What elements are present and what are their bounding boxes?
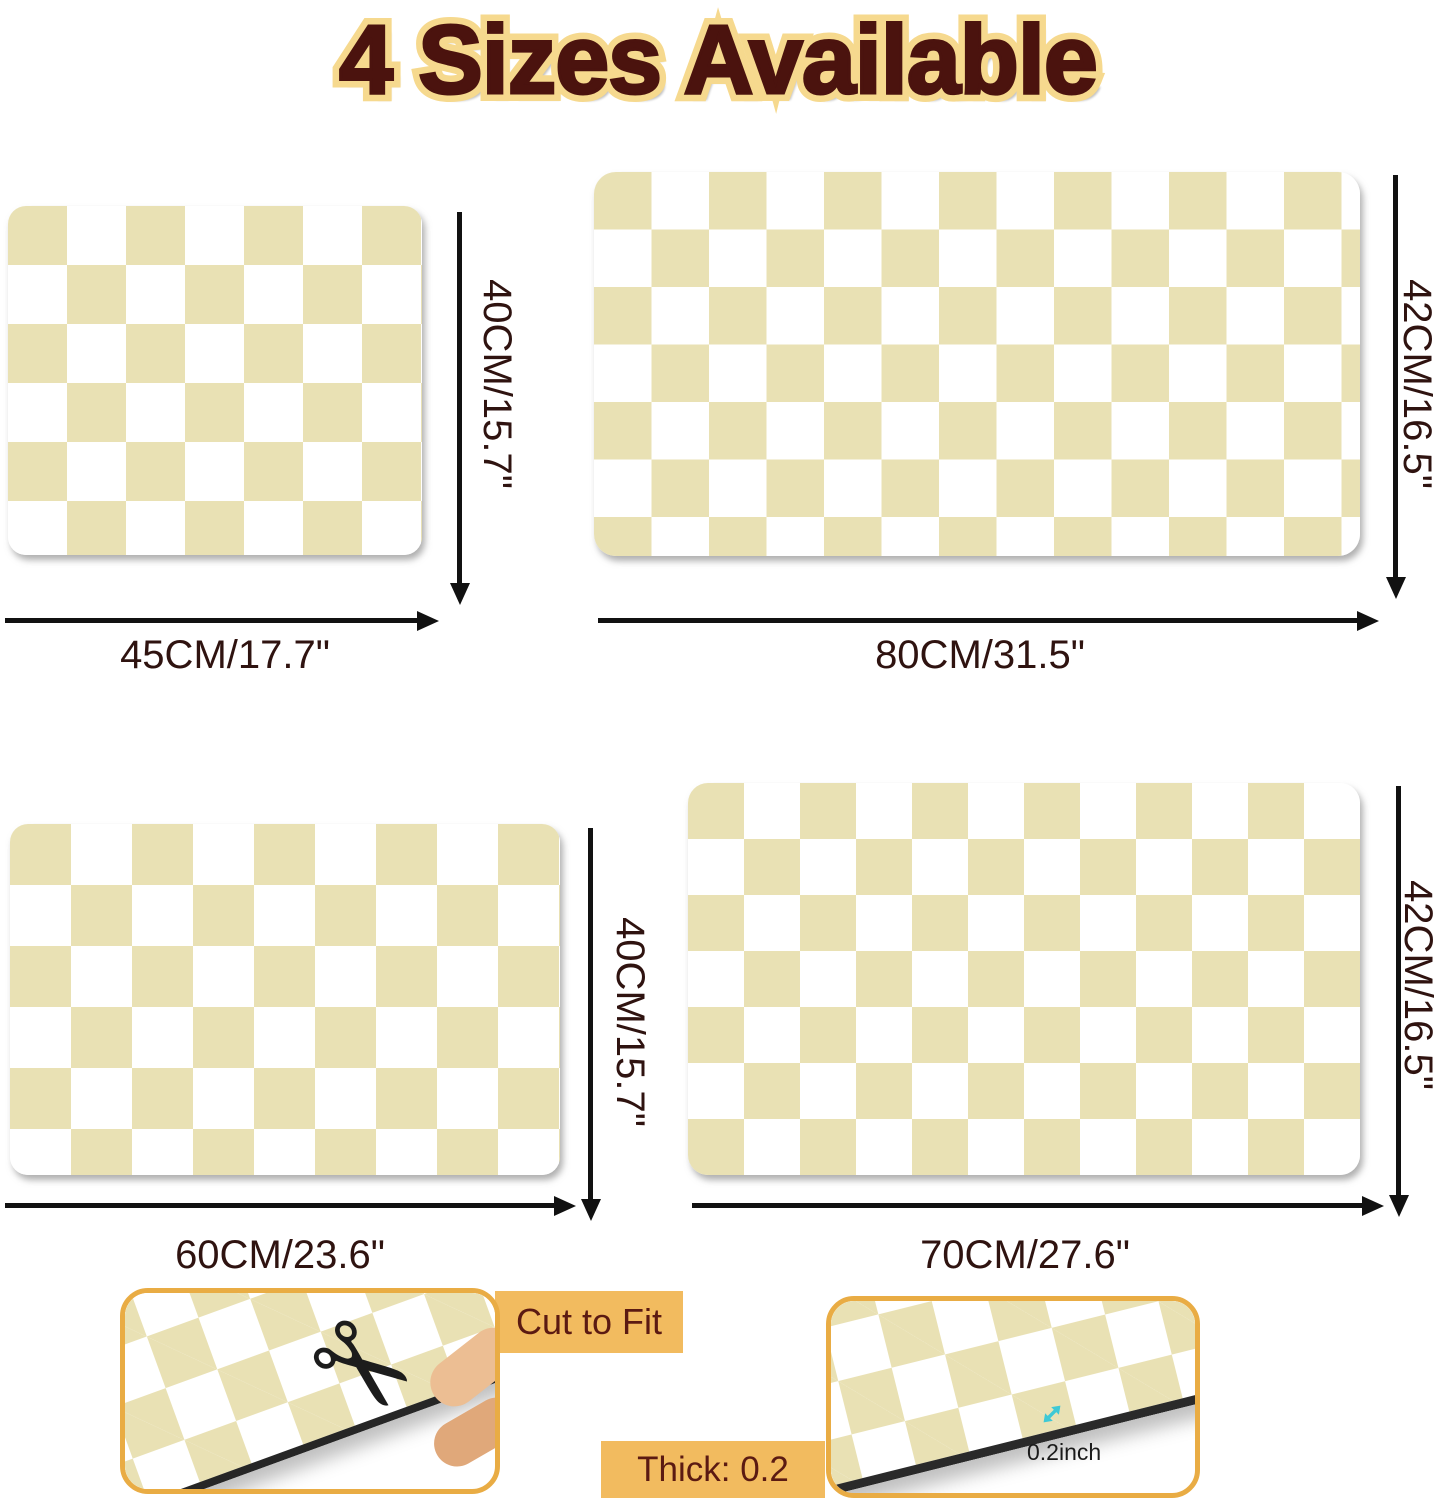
width-arrow-70x42	[692, 1203, 1363, 1208]
checkered-mat-70x42	[688, 783, 1360, 1175]
diagonal-checkered-mat-edge	[826, 1296, 1200, 1498]
width-arrow-60x40	[5, 1203, 555, 1208]
thickness-label: Thick: 0.2 inch	[601, 1441, 825, 1498]
width-label-80x42: 80CM/31.5"	[780, 633, 1180, 678]
checkered-mat-45x40	[8, 206, 422, 555]
height-label-60x40: 40CM/15.7"	[606, 862, 654, 1182]
width-arrow-45x40	[5, 618, 418, 623]
cut-to-fit-label: Cut to Fit	[495, 1291, 683, 1353]
height-label-45x40: 40CM/15.7"	[473, 224, 521, 544]
product-size-infographic: 4 Sizes Available 4 Sizes Available 40CM…	[0, 0, 1436, 1500]
thickness-photo: 0.2inch	[826, 1296, 1200, 1498]
height-arrow-45x40	[457, 212, 462, 584]
height-label-70x42: 42CM/16.5"	[1394, 825, 1436, 1145]
page-title: 4 Sizes Available	[0, 4, 1436, 116]
width-label-70x42: 70CM/27.6"	[825, 1233, 1225, 1278]
width-arrow-80x42	[598, 618, 1358, 623]
height-label-80x42: 42CM/16.5"	[1393, 224, 1436, 544]
checkered-mat-80x42	[594, 172, 1360, 556]
thickness-annotation: 0.2inch	[1027, 1439, 1101, 1466]
cut-to-fit-photo: ✂	[120, 1288, 500, 1494]
checkered-mat-60x40	[10, 824, 560, 1175]
width-label-60x40: 60CM/23.6"	[80, 1233, 480, 1278]
width-label-45x40: 45CM/17.7"	[25, 633, 425, 678]
height-arrow-60x40	[588, 828, 593, 1200]
